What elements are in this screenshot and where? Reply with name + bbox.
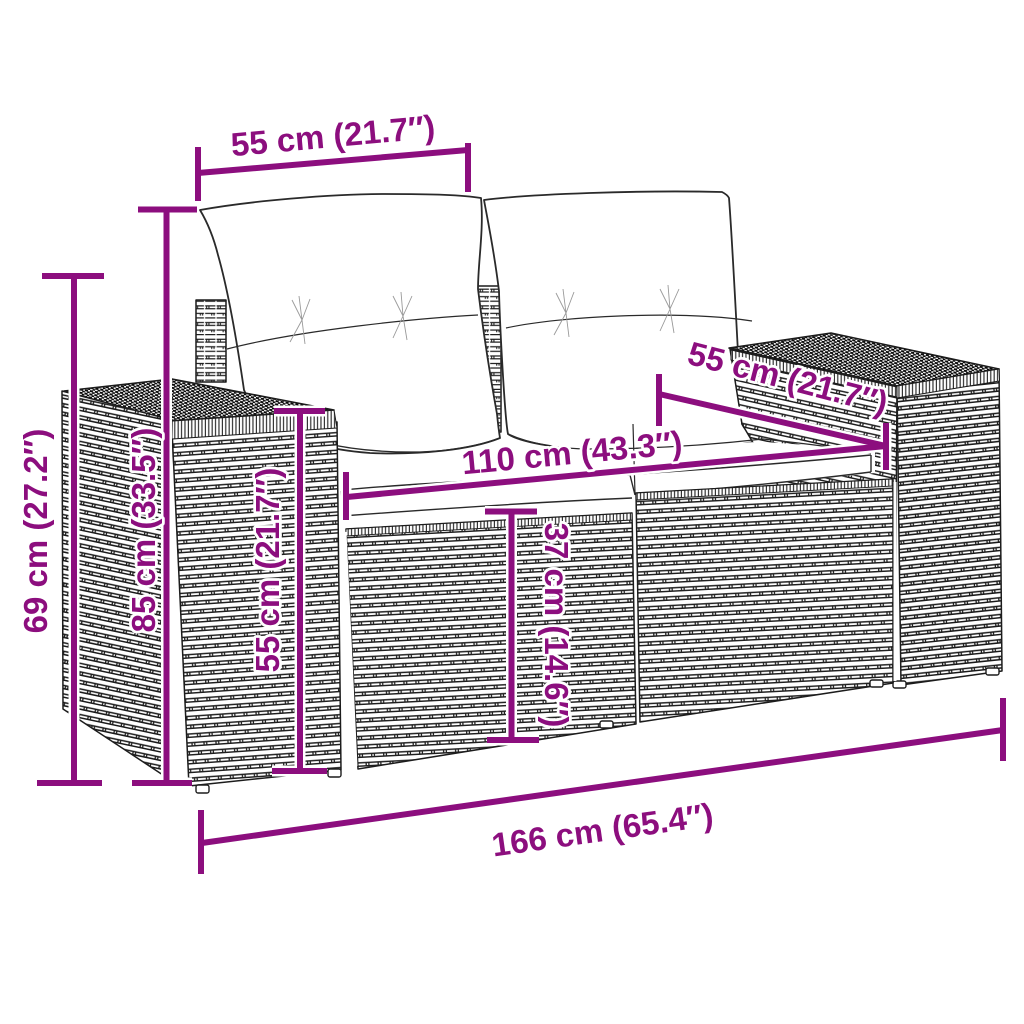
svg-text:69 cm (27.2″): 69 cm (27.2″) [17,429,54,634]
svg-text:37 cm (14.6″): 37 cm (14.6″) [538,523,575,728]
svg-text:85 cm (33.5″): 85 cm (33.5″) [125,428,162,633]
svg-text:55 cm (21.7″): 55 cm (21.7″) [249,468,286,673]
